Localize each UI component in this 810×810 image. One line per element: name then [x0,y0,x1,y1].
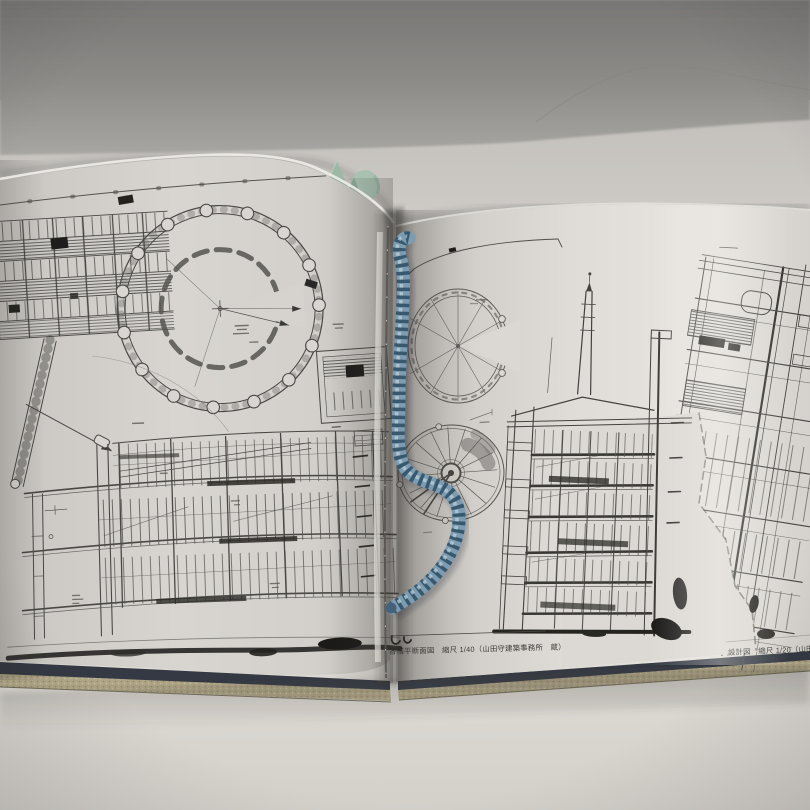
photo-canvas: 各階平断面図 縮尺 1/40（山田守建築事務所 蔵） 設計図 縮尺 1/20（山… [0,0,810,810]
photo-open-blueprint-book: 各階平断面図 縮尺 1/40（山田守建築事務所 蔵） 設計図 縮尺 1/20（山… [0,0,810,810]
photo-vignette [0,0,810,810]
